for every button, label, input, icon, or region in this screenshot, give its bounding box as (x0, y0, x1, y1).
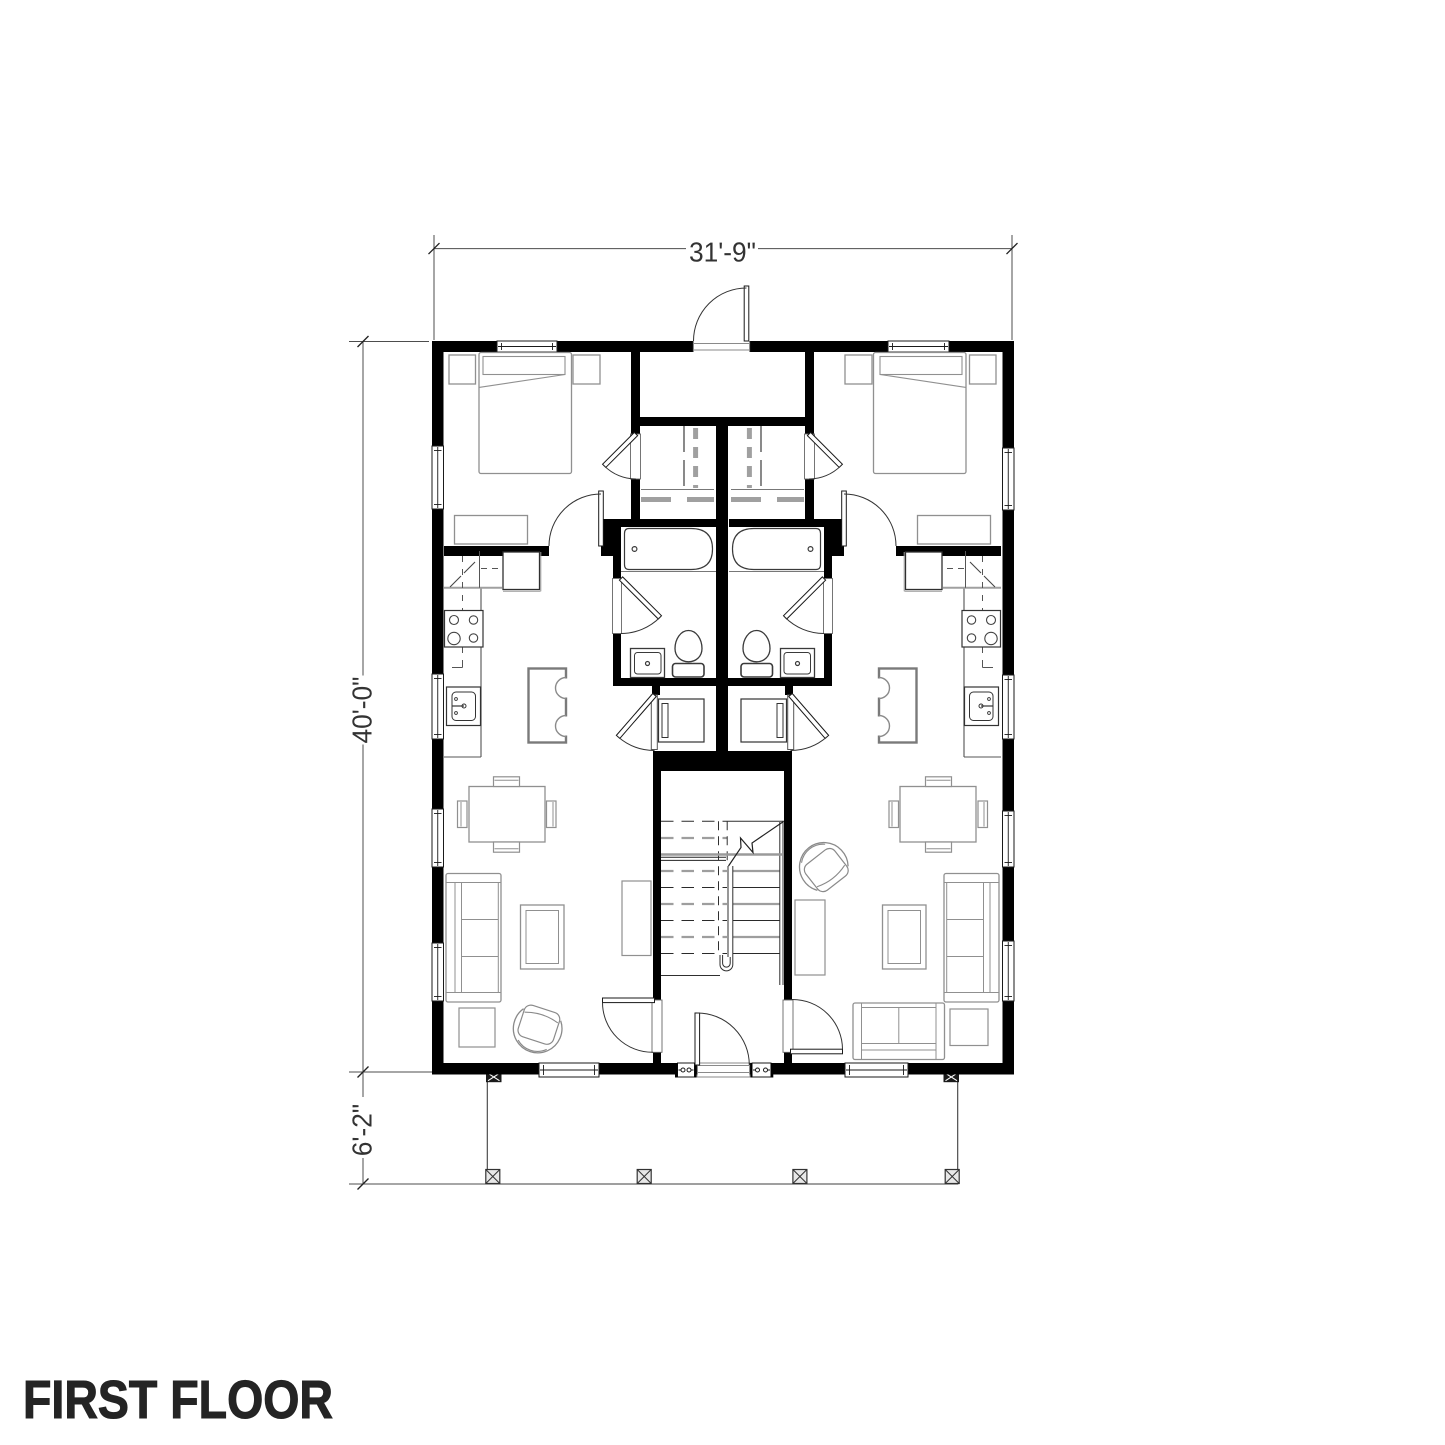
svg-text:FIRST FLOOR: FIRST FLOOR (23, 1370, 333, 1430)
